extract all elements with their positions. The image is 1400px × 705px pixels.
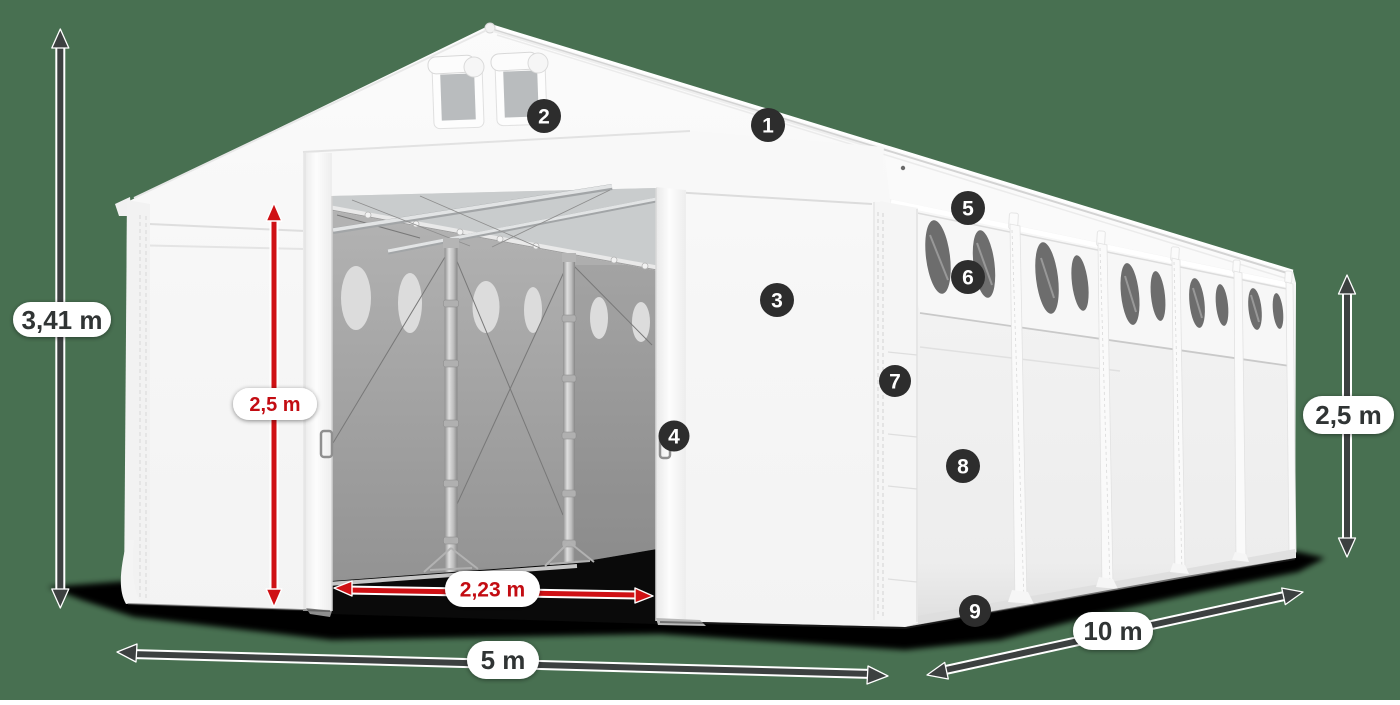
svg-text:2: 2 bbox=[538, 106, 550, 129]
svg-text:2,5 m: 2,5 m bbox=[1315, 400, 1382, 430]
svg-text:1: 1 bbox=[762, 115, 774, 138]
svg-text:8: 8 bbox=[957, 456, 969, 479]
svg-text:5 m: 5 m bbox=[481, 645, 526, 675]
svg-text:3,41 m: 3,41 m bbox=[22, 305, 103, 335]
svg-text:4: 4 bbox=[668, 426, 680, 449]
svg-text:7: 7 bbox=[889, 371, 901, 394]
svg-text:3: 3 bbox=[771, 290, 783, 313]
svg-text:5: 5 bbox=[962, 198, 974, 221]
svg-text:10 m: 10 m bbox=[1083, 616, 1142, 646]
svg-text:6: 6 bbox=[962, 267, 974, 290]
svg-text:2,23 m: 2,23 m bbox=[460, 579, 525, 602]
svg-text:9: 9 bbox=[969, 601, 981, 624]
svg-text:2,5 m: 2,5 m bbox=[249, 394, 300, 416]
